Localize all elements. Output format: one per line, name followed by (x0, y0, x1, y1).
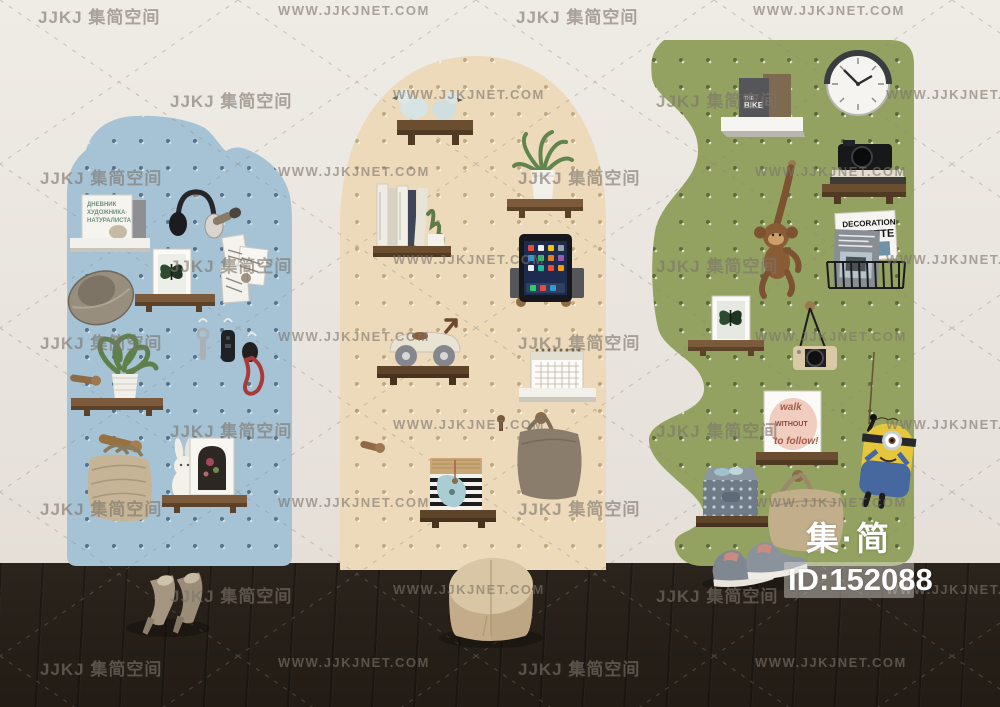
image-id-label: ID:152088 (784, 562, 914, 598)
svg-text:WITHOUT: WITHOUT (775, 421, 808, 428)
svg-text:BIKE: BIKE (744, 101, 764, 110)
svg-text:walk: walk (780, 402, 802, 413)
wall-clock (827, 53, 889, 115)
svg-text:ДНЕВНИК: ДНЕВНИК (87, 202, 117, 208)
scene-graphic: ДНЕВНИК ХУДОЖНИКА· НАТУРАЛИСТА (0, 0, 1000, 707)
brand-overlay: 集·简 ID:152088 (784, 512, 914, 598)
scene: ДНЕВНИК ХУДОЖНИКА· НАТУРАЛИСТА (0, 0, 1000, 707)
svg-text:ХУДОЖНИКА·: ХУДОЖНИКА· (87, 210, 127, 216)
arch-photo-frame (190, 438, 234, 495)
svg-text:to follow!: to follow! (774, 436, 819, 447)
display-book-shelf: ДНЕВНИК ХУДОЖНИКА· НАТУРАЛИСТА (70, 195, 150, 252)
brand-logo: 集·简 (784, 512, 914, 560)
butterfly-frame (153, 249, 191, 299)
svg-text:НАТУРАЛИСТА: НАТУРАЛИСТА (87, 218, 132, 224)
